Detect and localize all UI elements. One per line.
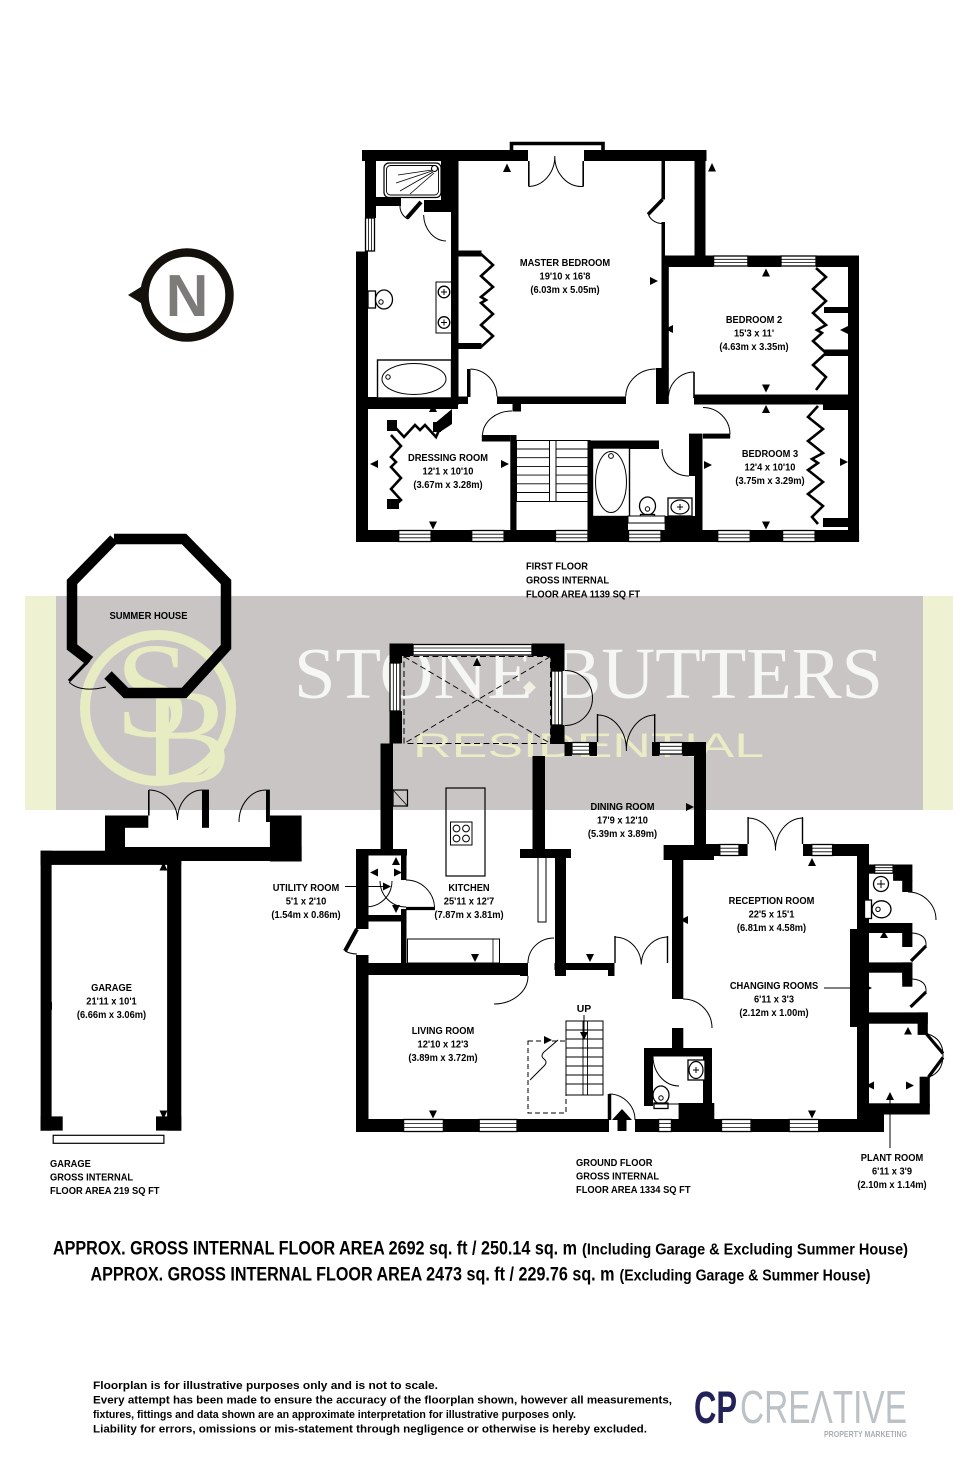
svg-text:CP: CP	[694, 1382, 737, 1433]
svg-text:12'10 x 12'3: 12'10 x 12'3	[418, 1039, 469, 1051]
svg-text:FLOOR AREA 219 SQ FT: FLOOR AREA 219 SQ FT	[50, 1185, 160, 1197]
svg-text:N: N	[166, 263, 209, 329]
svg-text:FIRST FLOOR: FIRST FLOOR	[526, 561, 588, 573]
svg-text:FLOOR AREA 1139 SQ FT: FLOOR AREA 1139 SQ FT	[526, 589, 641, 601]
svg-text:(3.89m x 3.72m): (3.89m x 3.72m)	[408, 1052, 477, 1064]
svg-text:19'10 x 16'8: 19'10 x 16'8	[540, 271, 591, 283]
svg-text:(3.67m x 3.28m): (3.67m x 3.28m)	[413, 479, 482, 491]
svg-text:21'11 x 10'1: 21'11 x 10'1	[86, 996, 137, 1008]
svg-text:BEDROOM 3: BEDROOM 3	[742, 448, 798, 460]
svg-text:(3.75m x 3.29m): (3.75m x 3.29m)	[735, 475, 804, 487]
svg-text:GROUND FLOOR: GROUND FLOOR	[576, 1157, 653, 1169]
svg-text:15'3 x 11': 15'3 x 11'	[734, 328, 774, 340]
svg-text:SUMMER HOUSE: SUMMER HOUSE	[110, 610, 188, 622]
svg-text:PLANT ROOM: PLANT ROOM	[861, 1152, 924, 1164]
svg-text:Every attempt has been made to: Every attempt has been made to ensure th…	[93, 1395, 672, 1407]
svg-text:UTILITY ROOM: UTILITY ROOM	[273, 882, 340, 894]
svg-text:FLOOR AREA 1334 SQ FT: FLOOR AREA 1334 SQ FT	[576, 1184, 691, 1196]
svg-text:BEDROOM 2: BEDROOM 2	[726, 314, 782, 326]
svg-text:(7.87m x 3.81m): (7.87m x 3.81m)	[434, 909, 503, 921]
svg-text:5'1 x 2'10: 5'1 x 2'10	[286, 896, 327, 908]
svg-text:CHANGING ROOMS: CHANGING ROOMS	[730, 980, 818, 992]
svg-text:GROSS INTERNAL: GROSS INTERNAL	[526, 575, 610, 587]
svg-text:(6.81m x 4.58m): (6.81m x 4.58m)	[737, 922, 806, 934]
svg-text:GARAGE: GARAGE	[50, 1158, 91, 1170]
svg-text:LIVING ROOM: LIVING ROOM	[412, 1025, 475, 1037]
svg-text:MASTER BEDROOM: MASTER BEDROOM	[520, 257, 611, 269]
svg-text:(1.54m x 0.86m): (1.54m x 0.86m)	[271, 909, 340, 921]
svg-text:KITCHEN: KITCHEN	[448, 882, 489, 894]
svg-text:GROSS INTERNAL: GROSS INTERNAL	[576, 1171, 660, 1183]
svg-text:(Excluding Garage & Summer Hou: (Excluding Garage & Summer House)	[620, 1268, 871, 1285]
svg-text:RECEPTION ROOM: RECEPTION ROOM	[729, 895, 815, 907]
svg-text:6'11 x 3'9: 6'11 x 3'9	[872, 1166, 912, 1178]
svg-text:fixtures, fittings and data sh: fixtures, fittings and data shown are an…	[93, 1409, 576, 1421]
svg-text:APPROX. GROSS INTERNAL FLOOR A: APPROX. GROSS INTERNAL FLOOR AREA 2473 s…	[91, 1265, 615, 1286]
svg-text:(2.10m x 1.14m): (2.10m x 1.14m)	[857, 1179, 926, 1191]
svg-text:(Including Garage & Excluding: (Including Garage & Excluding Summer Hou…	[582, 1242, 908, 1259]
svg-text:6'11 x 3'3: 6'11 x 3'3	[754, 994, 794, 1006]
svg-text:(5.39m x 3.89m): (5.39m x 3.89m)	[588, 828, 657, 840]
svg-text:(2.12m x 1.00m): (2.12m x 1.00m)	[739, 1007, 808, 1019]
svg-text:Liability for errors, omission: Liability for errors, omissions or mis-s…	[93, 1424, 647, 1436]
svg-text:PROPERTY MARKETING: PROPERTY MARKETING	[824, 1429, 907, 1439]
svg-text:25'11 x 12'7: 25'11 x 12'7	[444, 896, 495, 908]
svg-text:DINING ROOM: DINING ROOM	[591, 801, 655, 813]
svg-text:Floorplan is for illustrative: Floorplan is for illustrative purposes o…	[93, 1380, 438, 1392]
svg-text:(6.66m x 3.06m): (6.66m x 3.06m)	[77, 1009, 146, 1021]
svg-text:(6.03m x 5.05m): (6.03m x 5.05m)	[530, 284, 599, 296]
svg-text:CREΛTIVE: CREΛTIVE	[740, 1381, 907, 1433]
svg-text:22'5 x 15'1: 22'5 x 15'1	[749, 909, 795, 921]
svg-text:UP: UP	[577, 1003, 592, 1015]
svg-text:(4.63m x 3.35m): (4.63m x 3.35m)	[719, 341, 788, 353]
svg-text:DRESSING ROOM: DRESSING ROOM	[408, 452, 488, 464]
svg-text:GROSS INTERNAL: GROSS INTERNAL	[50, 1172, 134, 1184]
svg-text:12'4 x 10'10: 12'4 x 10'10	[745, 462, 796, 474]
svg-text:12'1 x 10'10: 12'1 x 10'10	[423, 466, 474, 478]
svg-text:17'9 x 12'10: 17'9 x 12'10	[597, 815, 648, 827]
svg-text:GARAGE: GARAGE	[91, 982, 132, 994]
svg-text:STONE BUTTERS: STONE BUTTERS	[294, 633, 883, 714]
svg-text:APPROX. GROSS INTERNAL FLOOR A: APPROX. GROSS INTERNAL FLOOR AREA 2692 s…	[53, 1239, 577, 1260]
